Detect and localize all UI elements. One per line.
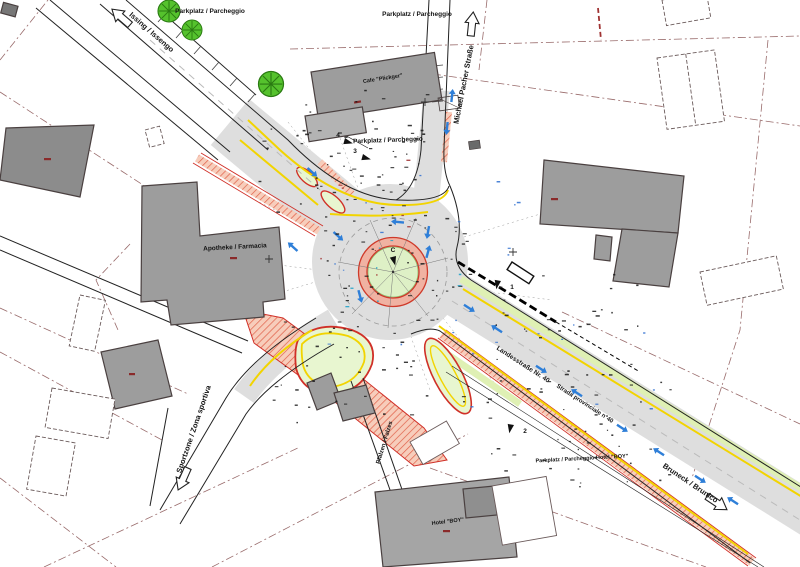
tree-icon <box>259 72 284 97</box>
boundary-mark <box>598 8 601 40</box>
building-corner <box>1 2 18 17</box>
section-marker-1: 1 <box>510 284 514 291</box>
tree-icon <box>182 20 202 40</box>
road-label-michael-pacher: Michael Pacher Straße <box>451 44 475 124</box>
site-plan-page: 3 4 1 2 C Issing / Issengo Michael Pache… <box>0 0 800 567</box>
section-marker-3: 3 <box>353 148 357 155</box>
bus-shelter <box>507 262 534 284</box>
building-right-wing <box>613 229 678 287</box>
label-parkplatz-mid: Parkplatz / Parcheggio <box>353 136 423 145</box>
label-parkplatz-top-left: Parkplatz / Parcheggio <box>175 8 245 15</box>
building-apotheke <box>141 182 285 325</box>
section-marker-c: C <box>391 247 396 254</box>
section-marker-2: 2 <box>523 428 527 435</box>
road-north-approach <box>426 90 437 200</box>
site-plan-drawing: 3 4 1 2 C Issing / Issengo Michael Pache… <box>0 0 800 567</box>
building-hotel-annex <box>463 486 497 518</box>
building-top-left <box>0 125 94 197</box>
building-right-bar <box>540 160 684 233</box>
label-parkplatz-top-center: Parkplatz / Parcheggio <box>382 11 452 18</box>
arrow-michael-pacher-icon <box>464 11 480 36</box>
building-right-annex <box>594 235 612 261</box>
